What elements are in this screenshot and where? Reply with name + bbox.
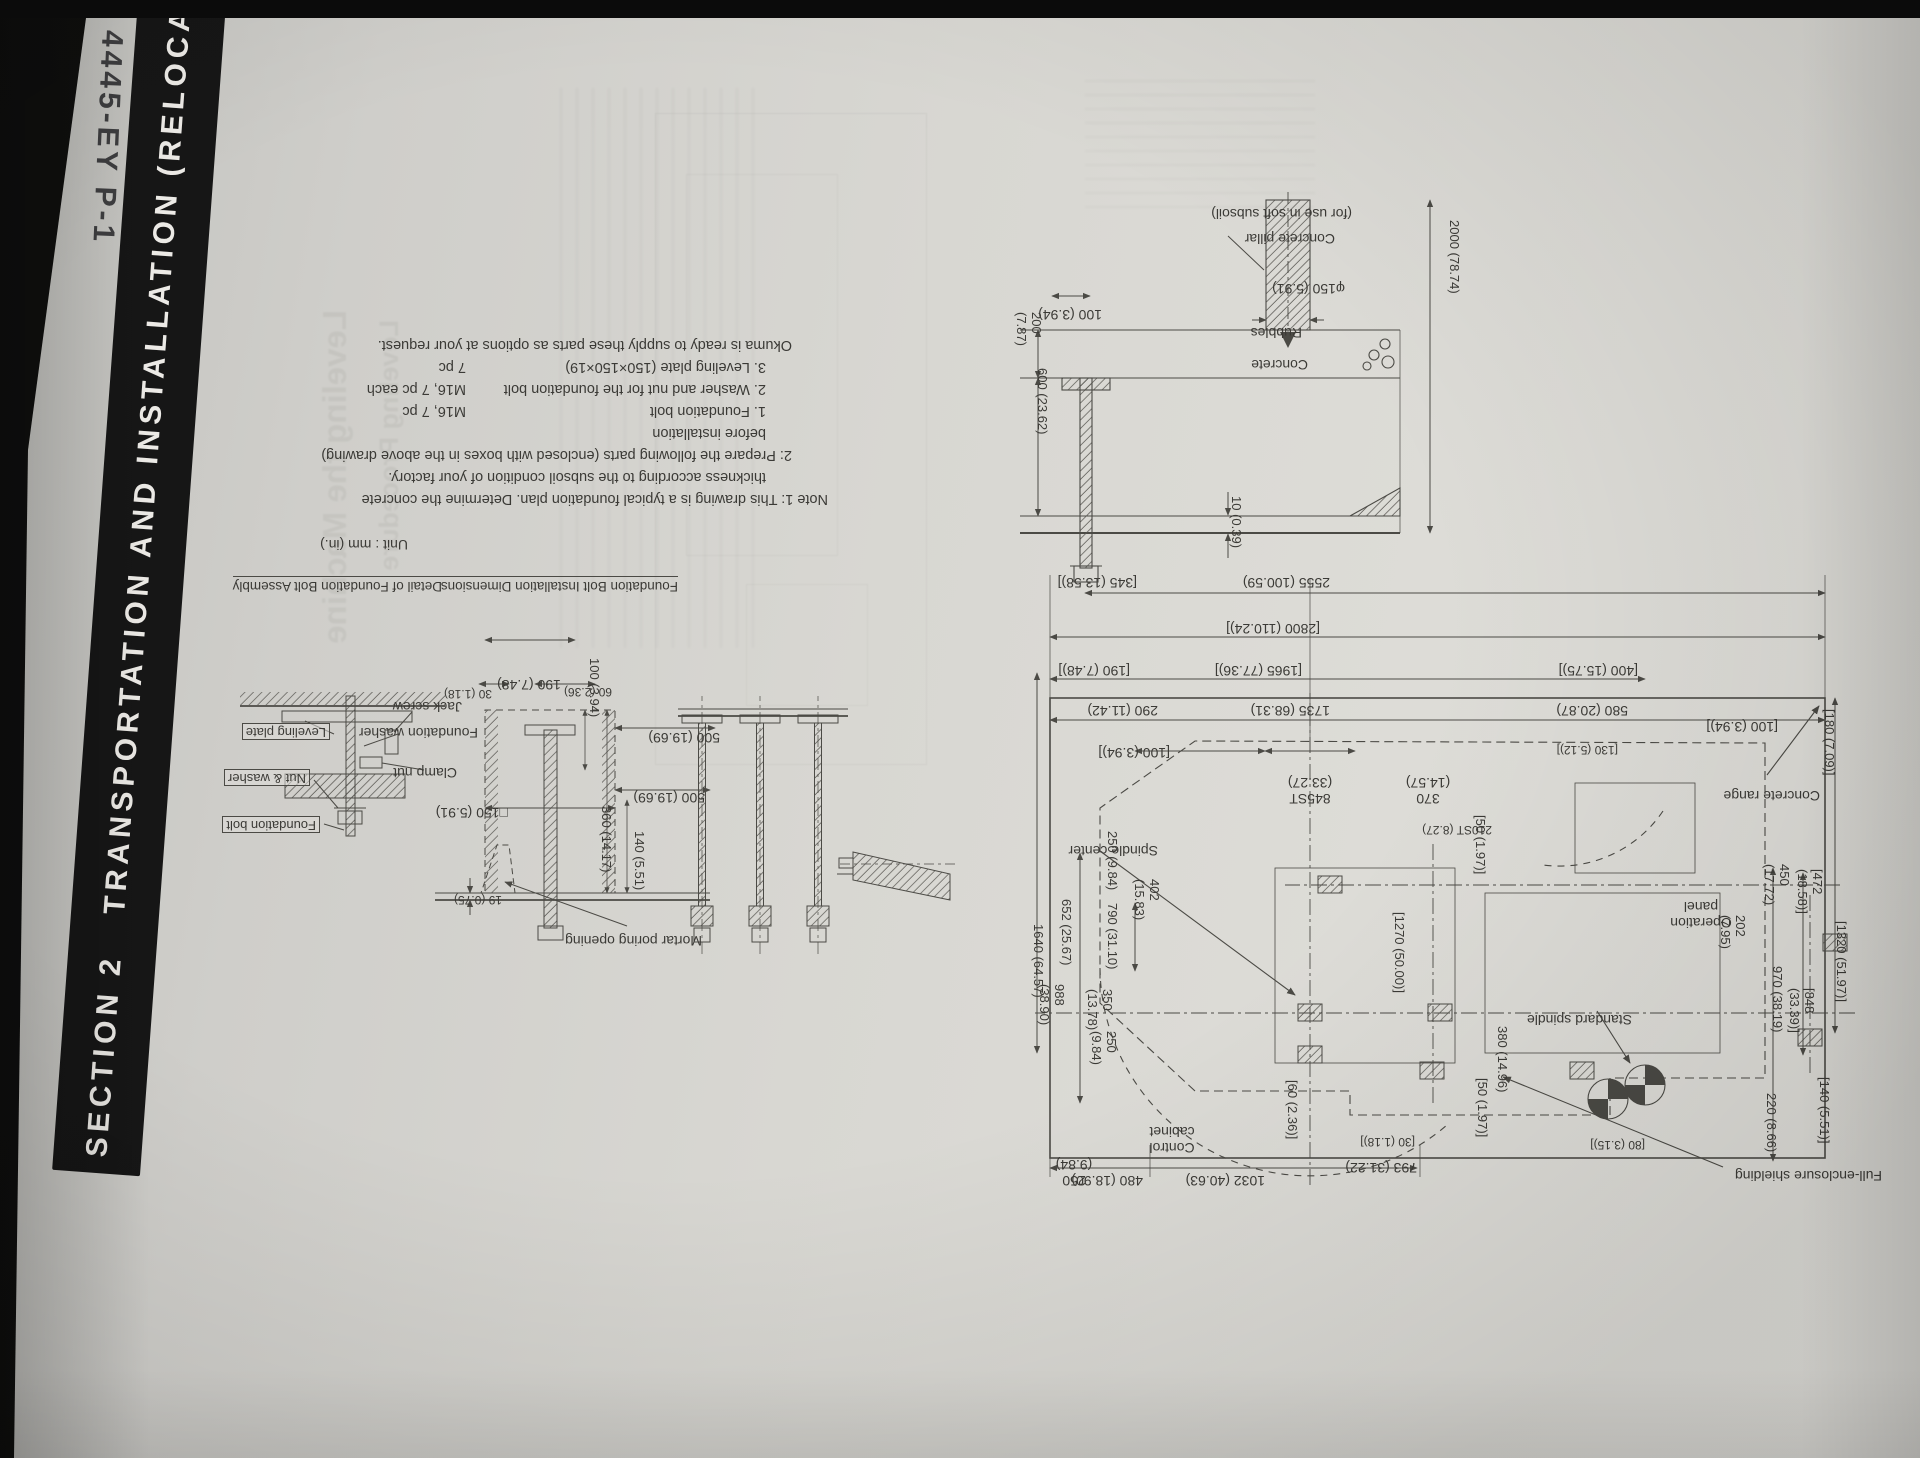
part-name: 1. Foundation bolt [466,400,766,422]
spindle-center-label: Spindle center [1068,842,1158,858]
dim-848: [848 (33.39)] [1787,988,1817,1058]
part-qty: M16, 7 pc [402,400,466,422]
plan-dimension-lines [1037,575,1835,1177]
bed-cross-section-drawing [835,826,965,926]
clamp-nut-label: Clamp nut [393,764,457,780]
foundation-bolt-label: Foundation bolt [222,816,320,833]
dim-1735: 1735 (68.31) [1251,702,1330,718]
soft-subsoil-note: (for use in soft subsoil) [1211,205,1352,221]
dim-250-a: 250 (9.84) [1045,1157,1103,1188]
note-line: Okuma is ready to supply these parts as … [283,334,792,356]
figure-layer: 480 (18.90) 1032 (40.63) 793 (31.22) 250… [0,18,1920,1458]
dim-1032: 1032 (40.63) [1186,1172,1265,1188]
concrete-label: Concrete [1251,356,1308,372]
mortar-poring-opening-label: Mortar poring opening [565,932,702,948]
dim-845st: 845ST (33.27) [1268,775,1352,806]
parts-row: 3. Leveling plate (150×150×19) 7 pc [283,356,766,378]
dim-210st: 210ST (8.27) [1422,823,1492,836]
notes-block: Note 1: This drawing is a typical founda… [283,334,828,510]
leveling-pad-symbols [1588,1065,1665,1119]
note-line: before installation [283,422,766,444]
rubbles-label: Rubbles [1251,324,1302,340]
dim-10-section: 10 (0.39) [1224,496,1244,576]
part-name: 3. Leveling plate (150×150×19) [466,356,766,378]
dim-100-a: [100 (3.94)] [1098,744,1170,760]
dim-190-install: 190 (7.48) [496,676,562,692]
dim-180: [180 (7.09)] [1807,709,1837,783]
foundation-washer-label: Foundation washer [359,724,478,740]
dim-290: 290 (11.42) [1087,702,1158,718]
unit-note: Unit : mm (in.) [320,536,408,552]
dim-790: 790 (31.10) [1090,903,1120,973]
dim-100-b: [100 (3.94)] [1706,718,1778,734]
dim-2000-section: 2000 (78.74) [1442,220,1462,336]
note-line: Note 1: This drawing is a typical founda… [283,488,828,510]
dim-60: [60 (2.36)] [1280,1080,1300,1160]
dim-30: [30 (1.18)] [1360,1135,1415,1148]
note-line: 2: Prepare the following parts (enclosed… [283,444,792,466]
dim-80: [80 (3.15)] [1590,1138,1645,1151]
jack-screw-label: Jack screw [393,698,462,714]
part-name: 2. Washer and nut for the foundation bol… [466,378,766,400]
dim-402: 402 (15.83) [1132,879,1162,943]
dim-100-install: 100 (3.94) [572,658,602,720]
dim-652: 652 (25.67) [1044,899,1074,985]
photo-background: Leveling the Machine Leveling Procedure [0,18,1920,1458]
bolt-assembly-title: Detail of Foundation Bolt Assembly [233,576,442,594]
part-qty: 7 pc [439,356,466,378]
dim-793: 793 (31.22) [1345,1159,1417,1175]
dim-1270: [1270 (50.00)] [1377,912,1407,998]
dim-250-b: 250 (9.84) [1090,831,1120,895]
dim-370: 370 (14.57) [1398,775,1458,806]
concrete-range-label: Concrete range [1723,787,1820,803]
dim-2800: [2800 (110.24)] [1226,620,1320,636]
dim-130: [130 (5.12)] [1557,743,1618,756]
dim-600-section: 600 (23.62) [1020,368,1050,452]
dim-970: 970 (38.19) [1755,966,1785,1040]
dim-190-plan: [190 (7.48)] [1058,662,1130,678]
nut-washer-label: Nut & washer [224,769,310,786]
control-cabinet-label: Control cabinet [1127,1124,1217,1155]
dim-220: 220 (8.66) [1749,1093,1779,1163]
parts-row: 1. Foundation bolt M16, 7 pc [283,400,766,422]
dim-400: [400 (15.75)] [1559,662,1638,678]
part-qty: M16, 7 pc each [367,378,466,400]
dim-500-b: 500 (19.69) [633,789,705,805]
dim-1965: [1965 (77.36)] [1215,662,1302,678]
dim-140: [140 (5.51)] [1802,1077,1832,1147]
operation-panel-label: Operation panel [1658,899,1744,930]
standard-spindle-label: Standard spindle [1527,1011,1632,1027]
dim-580: 580 (20.87) [1556,702,1628,718]
dim-1320: [1320 (51.97)] [1819,921,1849,1013]
dim-140-install: 140 (5.51) [617,831,647,895]
note-line: thickness according to the subsoil condi… [283,466,766,488]
dim-988: 988 (38.90) [1037,984,1067,1050]
dim-250-c: 250 (9.84) [1089,1031,1119,1087]
dim-19: 19 (0.75) [454,893,502,906]
leveling-plate-label: Leveling plate [242,723,330,740]
dim-450: 450 (17.72) [1762,864,1792,930]
dim-100-section: 100 (3.94) [1038,306,1102,322]
foundation-plan-drawing [825,538,1895,1203]
concrete-pillar-label: Concrete pillar [1245,230,1335,246]
parts-row: 2. Washer and nut for the foundation bol… [283,378,766,400]
document-page: Leveling the Machine Leveling Procedure [0,18,1920,1458]
full-enclosure-shielding-label: Full-enclosure shielding [1735,1167,1882,1183]
dim-dia150: φ150 (5.91) [1272,280,1345,296]
dim-200-section: 200 (7.87) [1014,312,1044,368]
dim-360: 360 (14.17) [584,806,614,880]
dim-500-a: 500 (19.69) [648,729,720,745]
dim-50-a: [50 (1.97)] [1460,1078,1490,1148]
